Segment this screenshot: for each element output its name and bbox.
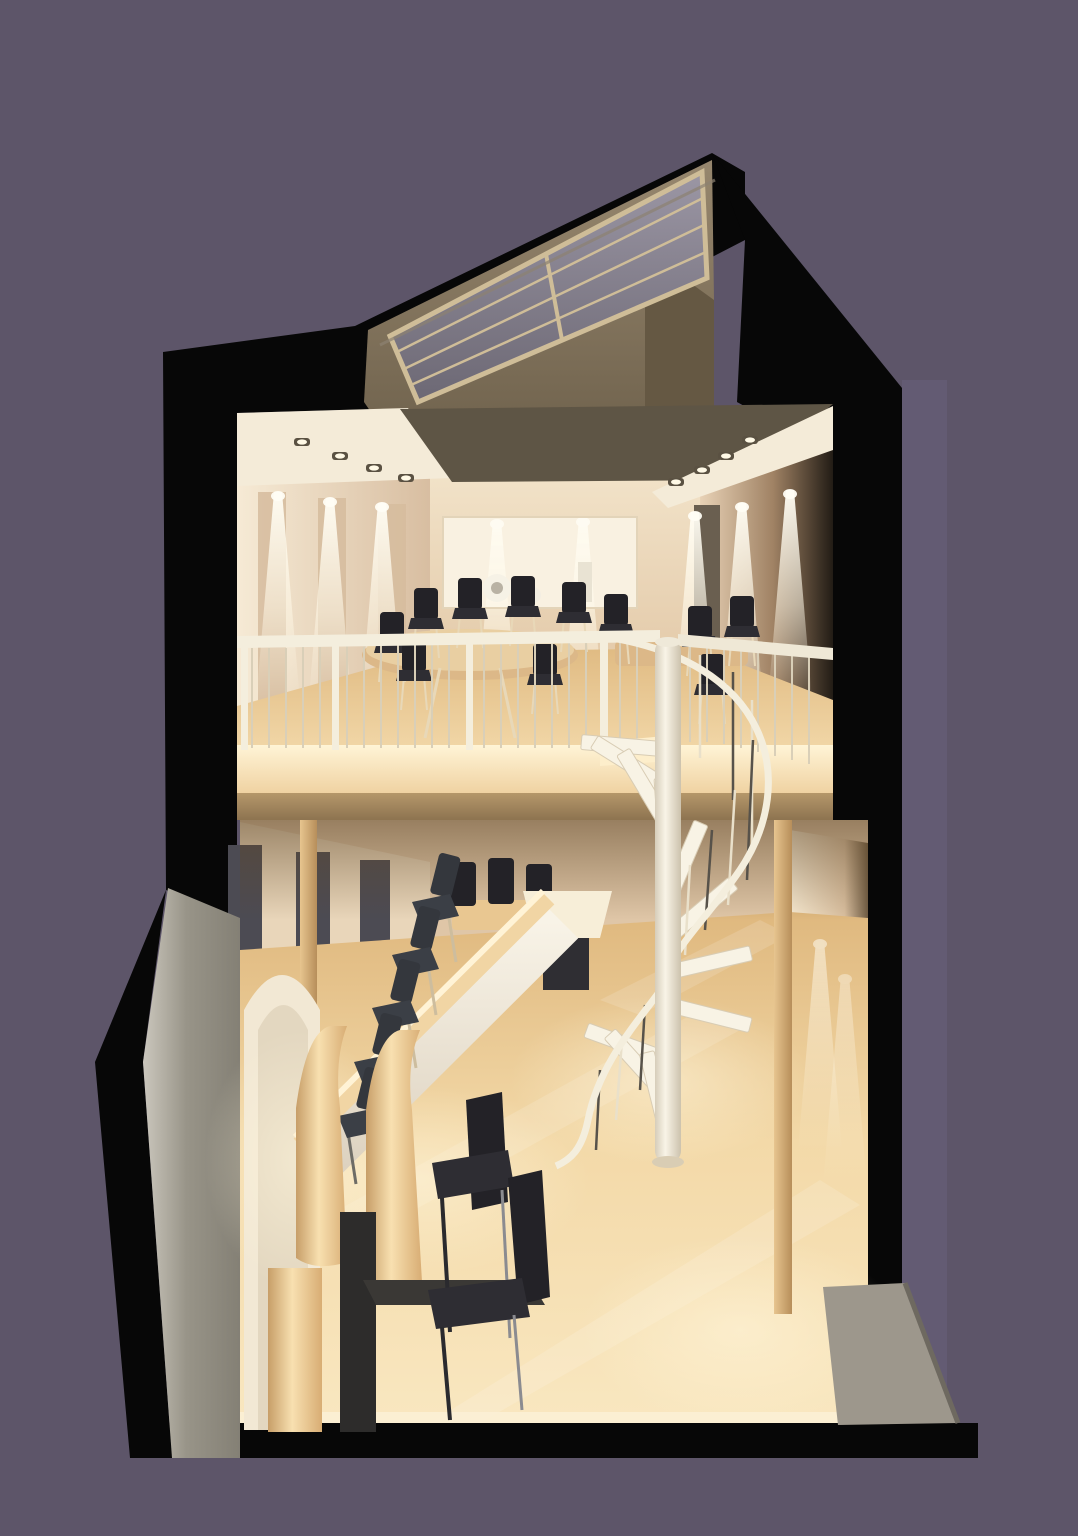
desk-dark-slot xyxy=(340,1212,376,1432)
lower-interior xyxy=(143,820,900,1458)
stair-pole-cap xyxy=(655,637,681,647)
stair-center-pole xyxy=(655,640,681,1162)
backdrop-soft-band xyxy=(902,380,947,1430)
architectural-render xyxy=(0,0,1078,1536)
mezzanine-fascia xyxy=(237,793,833,820)
upper-interior xyxy=(237,404,833,820)
wood-post-right xyxy=(774,820,792,1314)
floor-front-edge xyxy=(240,1412,868,1423)
mezzanine-floor-front-band xyxy=(237,745,833,795)
stair-pole-base xyxy=(652,1156,684,1168)
